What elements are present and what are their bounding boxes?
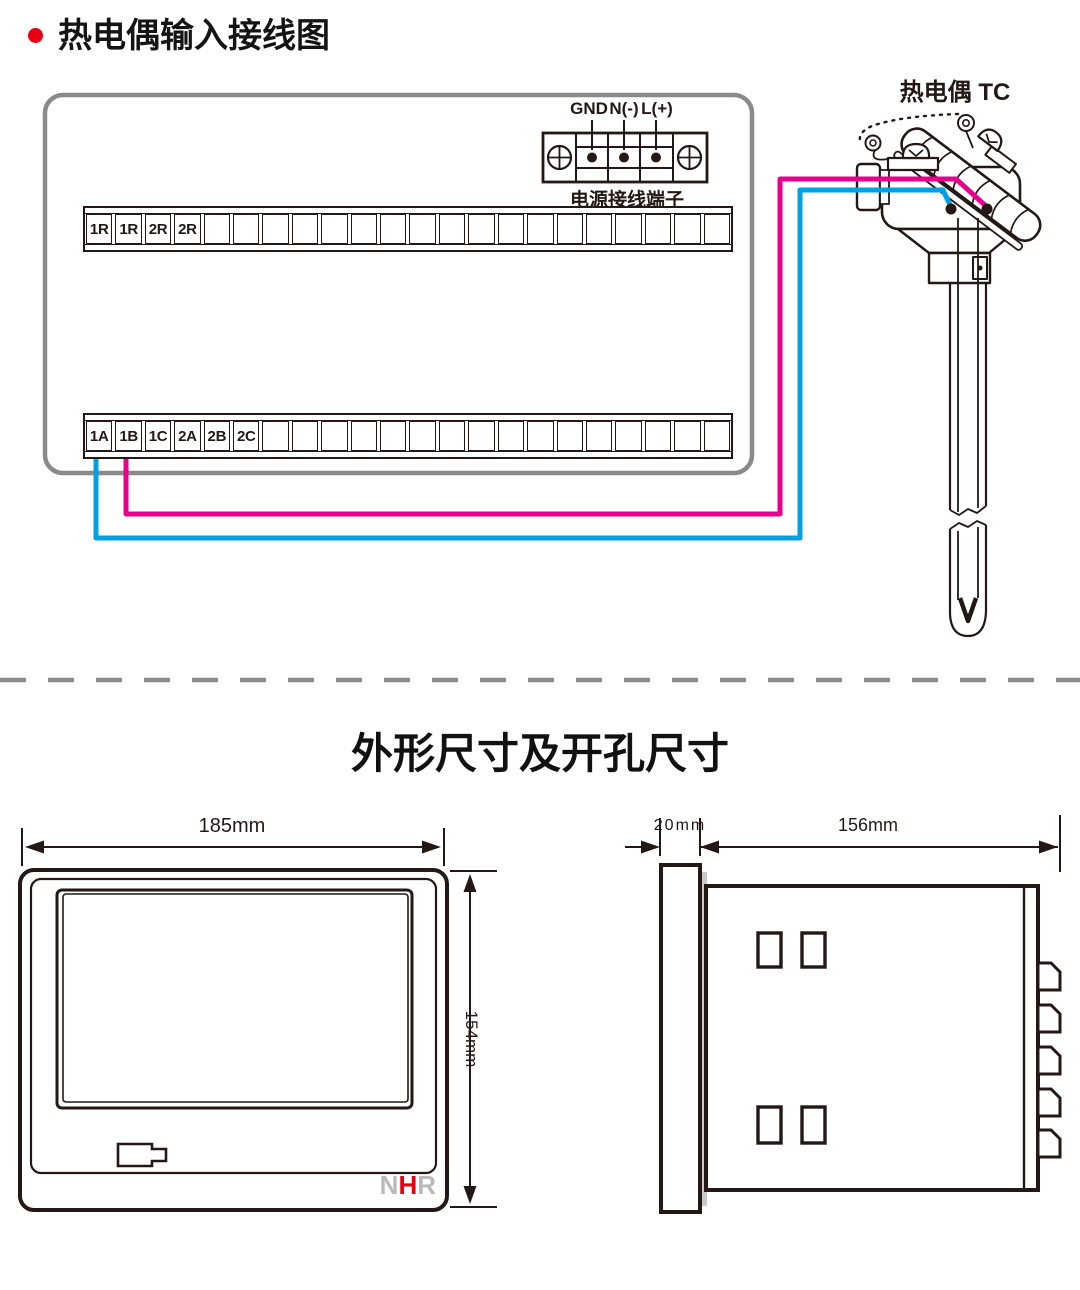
front-view-drawing [20,828,497,1210]
terminal-cell [380,214,406,244]
eyelet-icon [866,136,889,160]
terminal-cell-2R: 2R [145,214,171,244]
terminal-cell [321,214,347,244]
screw-icon [678,146,701,169]
terminal-cell-2A: 2A [174,421,200,451]
terminal-cell [439,421,465,451]
terminal-cell [704,421,730,451]
logo-letter-r: R [417,1170,436,1201]
terminal-cell [262,421,288,451]
strip-rail [85,451,731,457]
terminal-cell [351,214,377,244]
terminal-cell [586,214,612,244]
terminal-cell [380,421,406,451]
dimension-label-width: 185mm [152,815,312,838]
terminal-cell [409,214,435,244]
terminal-cell [645,214,671,244]
screw-icon [548,146,571,169]
terminal-cell [557,421,583,451]
dimension-label-bezel-depth: 20mm [638,817,722,835]
thermocouple-label: 热电偶 TC [860,72,1050,107]
logo-letter-h: H [398,1170,417,1201]
terminal-cell [674,214,700,244]
manual-page: 热电偶输入接线图 GND N(-) L(+) 电源接线端子 1R 1R 2R 2… [0,0,1080,1290]
terminal-cell-1R: 1R [86,214,112,244]
terminal-strip-input: 1A 1B 1C 2A 2B 2C [83,413,733,459]
logo-letter-n: N [380,1170,399,1201]
terminal-cell [292,421,318,451]
terminal-cell [498,421,524,451]
eyelet-icon [958,115,974,148]
terminal-cell [645,421,671,451]
terminal-cell-2B: 2B [204,421,230,451]
side-view-drawing [625,815,1060,1212]
wing-nut-icon [903,144,929,158]
brand-logo: NHR [366,1170,436,1201]
terminal-cell [292,214,318,244]
section1-title-text: 热电偶输入接线图 [58,8,330,57]
terminal-cell-1B: 1B [115,421,141,451]
terminal-cell-2R: 2R [174,214,200,244]
terminal-cell [468,421,494,451]
strip-cells: 1R 1R 2R 2R [85,214,731,244]
terminal-cell-1R: 1R [115,214,141,244]
dimension-label-height: 154mm [461,993,481,1085]
section2-title: 外形尺寸及开孔尺寸 [0,720,1080,781]
terminal-tabs [1038,963,1060,1157]
terminal-cell [409,421,435,451]
terminal-cell [527,421,553,451]
terminal-cell [498,214,524,244]
bullet-icon [28,28,43,43]
terminal-cell [704,214,730,244]
power-terminal-block [543,120,707,182]
section1-title: 热电偶输入接线图 [28,8,330,57]
terminal-cell [527,214,553,244]
terminal-cell [615,214,641,244]
terminal-cell [439,214,465,244]
terminal-cell [233,214,259,244]
terminal-cell [351,421,377,451]
terminal-cell [557,214,583,244]
terminal-cell [586,421,612,451]
dimension-label-body-depth: 156mm [795,815,941,836]
terminal-cell [262,214,288,244]
terminal-cell [674,421,700,451]
wing-nut-icon [978,125,1006,151]
terminal-strip-relay: 1R 1R 2R 2R [83,206,733,252]
terminal-cell-2C: 2C [233,421,259,451]
terminal-cell [321,421,347,451]
terminal-cell-1A: 1A [86,421,112,451]
terminal-cell-1C: 1C [145,421,171,451]
junction-v-mark [960,598,976,621]
terminal-cell [204,214,230,244]
power-label-l: L(+) [622,99,692,119]
strip-cells: 1A 1B 1C 2A 2B 2C [85,421,731,451]
terminal-cell [615,421,641,451]
strip-rail [85,244,731,250]
terminal-cell [468,214,494,244]
